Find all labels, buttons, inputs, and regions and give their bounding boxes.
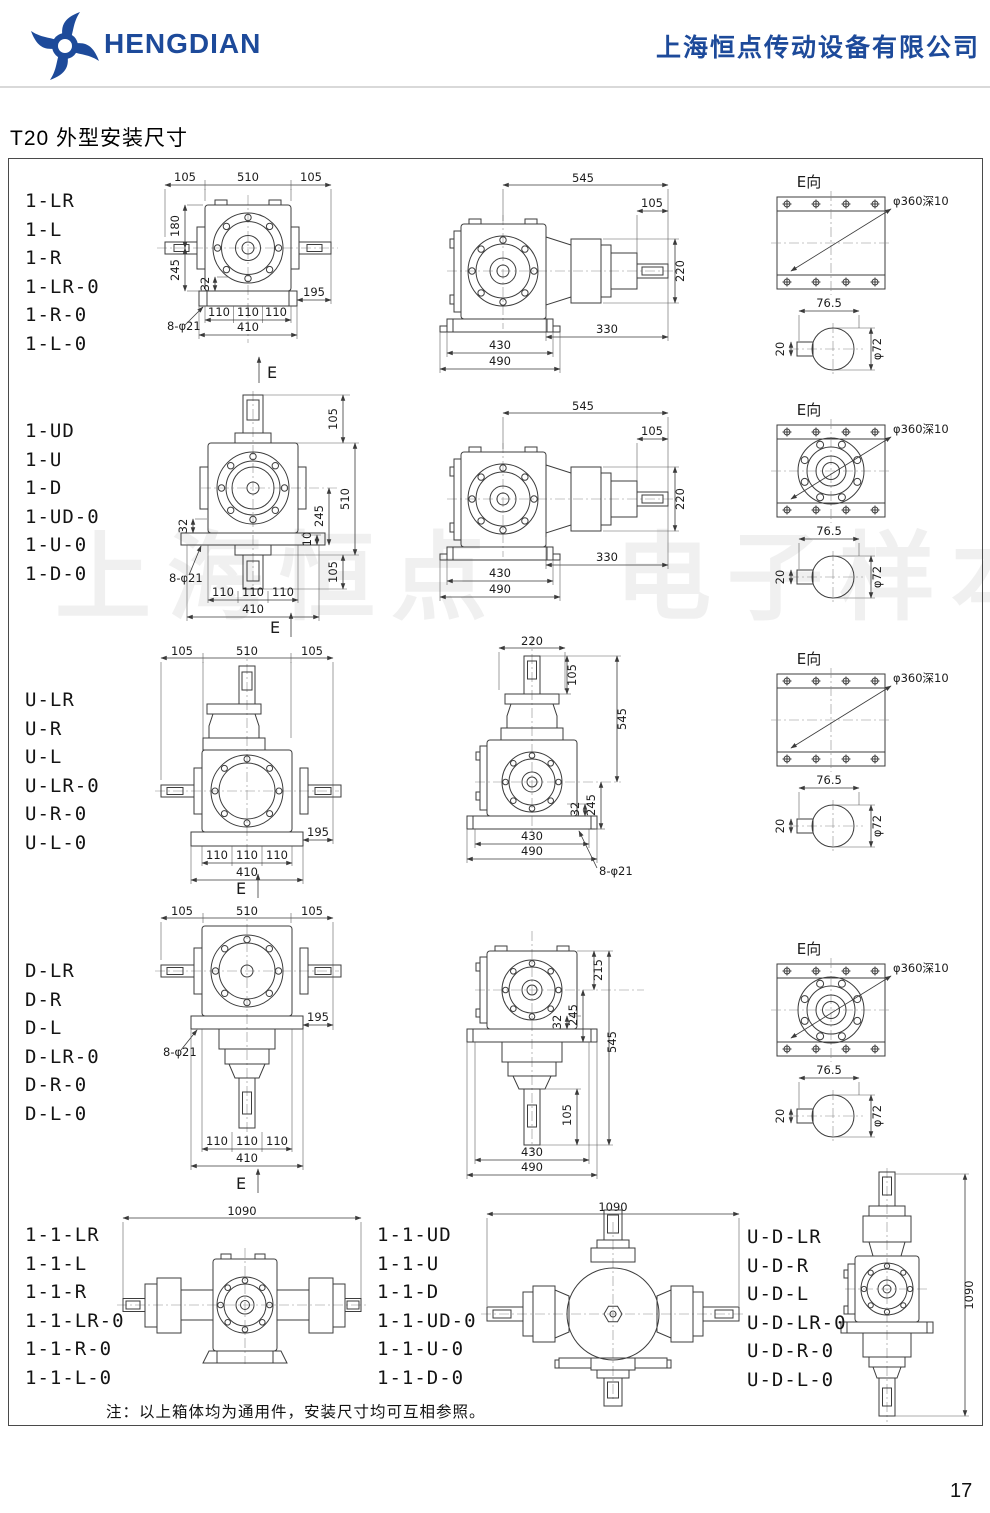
dim-label: 245 [312,505,326,527]
dim-label: 105 [300,170,322,184]
dim-label: 220 [673,488,687,510]
model-list-5c: U-D-LRU-D-RU-D-LU-D-LR-0U-D-R-0U-D-L-0 [747,1223,847,1394]
dim-label: 32 [568,802,582,817]
model-label: 1-1-D-0 [377,1364,477,1393]
model-label: D-LR-0 [25,1043,100,1072]
dim-label: 105 [174,170,196,184]
callout-label: 8-φ21 [599,864,633,878]
page-title: T20 外型安装尺寸 [10,122,188,152]
model-label: D-L [25,1014,100,1043]
dim-label: 245 [566,1004,580,1026]
callout-label: φ360深10 [893,961,949,975]
callout-label: 8-φ21 [163,1045,197,1059]
model-label: U-LR [25,686,100,715]
view-title: E向 [797,401,821,419]
callout-label: φ360深10 [893,671,949,685]
model-label: 1-R-0 [25,301,100,330]
hengdian-logo-icon [28,8,102,84]
side-view-row3: 220 105 545 32 245 430 490 8-φ21 [439,634,689,879]
dim-label: 105 [565,664,579,686]
model-label: D-R-0 [25,1071,100,1100]
dim-label: φ72 [870,815,884,837]
view-direction-label: E [267,363,277,382]
dim-label: 510 [338,488,352,510]
dim-label: 545 [572,399,594,413]
dim-label: 430 [489,566,511,580]
e-view-row3: E向 φ360深10 76.5 20 φ72 [761,648,981,863]
dim-label: 110 [236,1134,258,1148]
dim-label: 32 [198,277,212,292]
dim-label: 1090 [598,1202,627,1214]
dim-label: 180 [168,215,182,237]
footnote: 注：以上箱体均为通用件，安装尺寸均可互相参照。 [106,1400,486,1422]
model-label: 1-1-R-0 [25,1335,125,1364]
dim-label: 105 [301,644,323,658]
model-label: 1-D-0 [25,560,100,589]
dim-label: 110 [212,585,234,599]
dim-label: 110 [206,1134,228,1148]
model-label: 1-D [25,474,100,503]
dim-label: 32 [550,1015,564,1030]
dim-label: 510 [237,170,259,184]
dim-label: 410 [236,1151,258,1165]
dim-label: 110 [236,848,258,862]
dim-label: 330 [596,322,618,336]
callout-label: φ360深10 [893,194,949,208]
dim-label: 76.5 [816,296,842,310]
dim-label: 105 [641,196,663,210]
dim-label: φ72 [870,566,884,588]
dim-label: 430 [521,829,543,843]
dim-label: 410 [236,865,258,879]
company-name: 上海恒点传动设备有限公司 [656,28,980,64]
dim-label: 105 [326,561,340,583]
dim-label: 20 [773,819,787,834]
view-direction-label: E [270,618,280,637]
dim-label: 195 [307,825,329,839]
dim-label: 490 [521,844,543,858]
callout-label: φ360深10 [893,422,949,436]
dim-label: 220 [673,260,687,282]
dim-label: 490 [489,354,511,368]
dim-label: 110 [265,305,287,319]
model-label: U-D-R-0 [747,1337,847,1366]
dim-label: 76.5 [816,773,842,787]
model-label: 1-LR-0 [25,273,100,302]
dim-label: 215 [591,959,605,981]
side-view-row1: 545 105 220 330 430 490 [433,169,723,374]
model-label: 1-1-UD-0 [377,1307,477,1336]
dim-label: φ72 [870,338,884,360]
e-view-row2: E向 φ360深10 76.5 20 φ72 [761,399,981,614]
dim-label: 20 [773,1109,787,1124]
double-shaft-lr-drawing: 1090 [109,1204,374,1396]
dim-label: 545 [605,1031,619,1053]
callout-label: 8-φ21 [169,571,203,585]
view-direction-label: E [236,879,246,898]
dim-label: 430 [521,1145,543,1159]
e-view-row4: E向 φ360深10 76.5 20 φ72 [761,938,981,1153]
view-title: E向 [797,940,821,958]
dim-label: 110 [242,585,264,599]
model-label: U-R-0 [25,800,100,829]
model-list-5a: 1-1-LR1-1-L1-1-R1-1-LR-01-1-R-01-1-L-0 [25,1221,125,1392]
dim-label: 32 [176,519,190,534]
model-label: U-L-0 [25,829,100,858]
model-label: U-R [25,715,100,744]
dim-label: 76.5 [816,1063,842,1077]
model-label: U-LR-0 [25,772,100,801]
dim-label: 195 [307,1010,329,1024]
dim-label: 105 [560,1104,574,1126]
dim-label: 105 [326,408,340,430]
dim-label: 330 [596,550,618,564]
model-label: D-R [25,986,100,1015]
model-list-1: 1-LR1-L1-R1-LR-01-R-01-L-0 [25,187,100,358]
content-border: 1-LR1-L1-R1-LR-01-R-01-L-0 105 510 105 1… [8,158,983,1426]
dim-label: 490 [521,1160,543,1174]
page-number: 17 [950,1480,972,1503]
dim-label: 110 [206,848,228,862]
model-label: 1-1-D [377,1278,477,1307]
front-view-row4: 105 510 105 195 8-φ21 110 110 110 410 E [141,904,366,1196]
dim-label: 20 [773,570,787,585]
model-label: 1-R [25,244,100,273]
model-label: 1-1-U [377,1250,477,1279]
model-label: U-D-L-0 [747,1366,847,1395]
model-label: 1-1-U-0 [377,1335,477,1364]
model-list-5b: 1-1-UD1-1-U1-1-D1-1-UD-01-1-U-01-1-D-0 [377,1221,477,1392]
dim-label: 510 [236,644,258,658]
model-label: 1-U [25,446,100,475]
view-direction-label: E [236,1174,246,1193]
dim-label: 110 [272,585,294,599]
dim-label: 10 [300,532,314,547]
dim-label: 245 [168,259,182,281]
four-way-drawing: 1090 [471,1202,756,1410]
model-label: 1-1-LR [25,1221,125,1250]
model-label: 1-1-R [25,1278,125,1307]
dim-label: φ72 [870,1105,884,1127]
dim-label: 545 [572,171,594,185]
callout-label: 8-φ21 [167,319,201,333]
dim-label: 545 [615,708,629,730]
model-label: 1-U-0 [25,531,100,560]
front-view-row3: 105 510 105 195 110 110 110 410 E [141,644,366,901]
model-label: U-L [25,743,100,772]
model-list-3: U-LRU-RU-LU-LR-0U-R-0U-L-0 [25,686,100,857]
dim-label: 110 [266,1134,288,1148]
dim-label: 410 [237,320,259,334]
model-label: U-D-LR [747,1223,847,1252]
dim-label: 410 [242,602,264,616]
dim-label: 1090 [962,1280,976,1309]
model-label: U-D-L [747,1280,847,1309]
dim-label: 105 [301,904,323,918]
model-label: D-LR [25,957,100,986]
dim-label: 110 [237,305,259,319]
side-view-row2: 545 105 220 330 430 490 [433,397,723,602]
view-title: E向 [797,650,821,668]
model-label: 1-1-UD [377,1221,477,1250]
dim-label: 490 [489,582,511,596]
vertical-ud-drawing: 1090 [829,1164,981,1426]
page-header: HENGDIAN 上海恒点传动设备有限公司 [0,0,990,88]
model-label: 1-LR [25,187,100,216]
dim-label: 220 [521,634,543,648]
model-list-4: D-LRD-RD-LD-LR-0D-R-0D-L-0 [25,957,100,1128]
dim-label: 20 [773,342,787,357]
side-view-row4: 215 32 245 545 105 430 490 [439,927,689,1189]
model-label: 1-1-L [25,1250,125,1279]
view-title: E向 [797,173,821,191]
front-view-row2: 105 510 105 245 10 32 8-φ21 110 110 110 … [141,389,366,641]
front-view-row1: 105 510 105 180 245 32 8-φ21 195 110 110… [141,165,354,400]
dim-label: 245 [584,794,598,816]
dim-label: 510 [236,904,258,918]
model-label: 1-L-0 [25,330,100,359]
dim-label: 105 [171,644,193,658]
dim-label: 195 [303,285,325,299]
dim-label: 105 [641,424,663,438]
dim-label: 110 [208,305,230,319]
dim-label: 430 [489,338,511,352]
dim-label: 110 [266,848,288,862]
model-label: 1-1-LR-0 [25,1307,125,1336]
model-label: 1-1-L-0 [25,1364,125,1393]
model-label: U-D-R [747,1252,847,1281]
dim-label: 76.5 [816,524,842,538]
model-label: U-D-LR-0 [747,1309,847,1338]
model-label: 1-UD [25,417,100,446]
dim-label: 1090 [227,1204,256,1218]
e-view-row1: E向 φ360深10 76.5 20 φ72 [761,171,981,386]
model-label: 1-L [25,216,100,245]
model-label: D-L-0 [25,1100,100,1129]
model-list-2: 1-UD1-U1-D1-UD-01-U-01-D-0 [25,417,100,588]
brand-name: HENGDIAN [104,28,261,60]
dim-label: 105 [171,904,193,918]
model-label: 1-UD-0 [25,503,100,532]
